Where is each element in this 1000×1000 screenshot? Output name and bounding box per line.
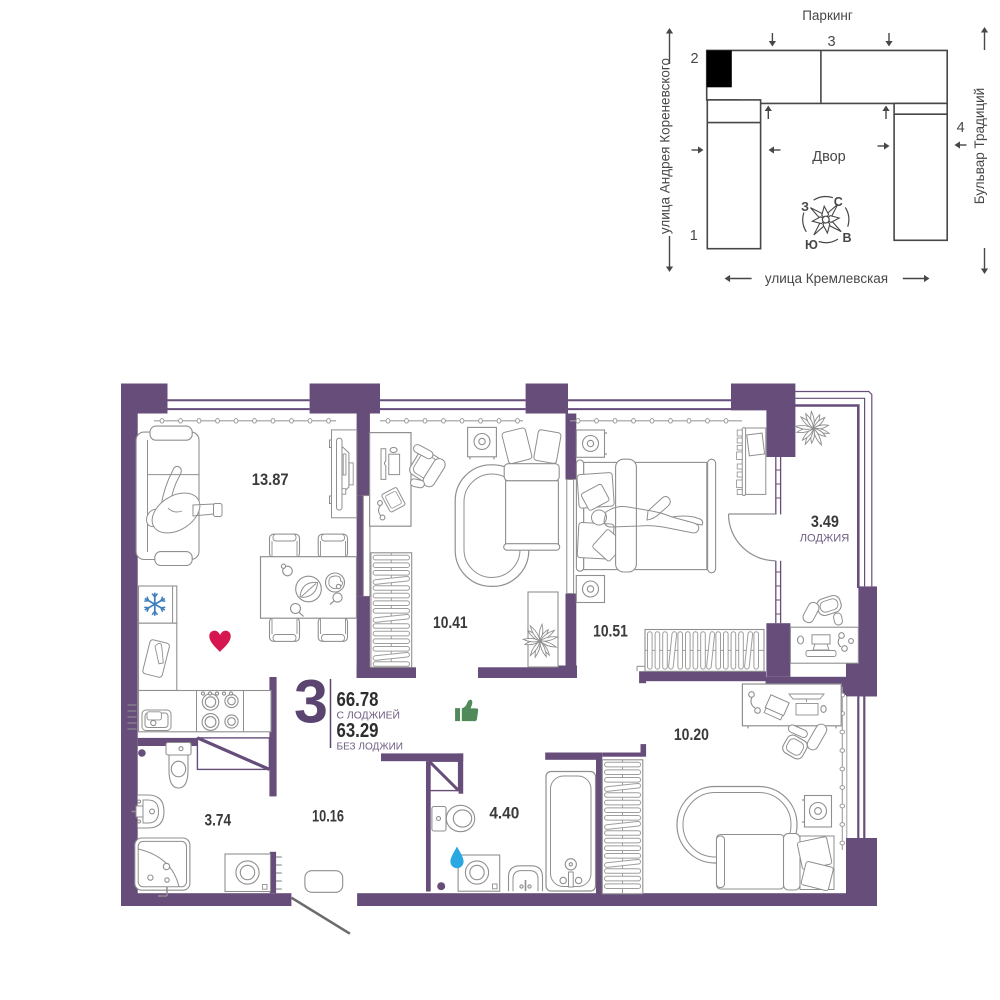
svg-text:Ю: Ю: [805, 238, 818, 252]
svg-text:10.16: 10.16: [312, 806, 344, 825]
svg-text:10.41: 10.41: [433, 613, 468, 632]
svg-text:Двор: Двор: [812, 149, 846, 165]
svg-text:3.74: 3.74: [205, 811, 232, 830]
svg-text:10.20: 10.20: [674, 725, 709, 744]
svg-text:1: 1: [690, 228, 698, 244]
svg-text:13.87: 13.87: [252, 470, 289, 489]
svg-text:Паркинг: Паркинг: [802, 8, 853, 23]
svg-text:Бульвар Традиций: Бульвар Традиций: [972, 88, 987, 204]
svg-text:В: В: [842, 231, 851, 245]
svg-text:10.51: 10.51: [593, 622, 628, 641]
svg-text:66.78: 66.78: [337, 688, 379, 711]
svg-text:4: 4: [957, 120, 965, 136]
svg-text:3: 3: [294, 668, 328, 736]
svg-text:3.49: 3.49: [811, 512, 839, 531]
svg-text:улица Кремлевская: улица Кремлевская: [765, 271, 888, 286]
svg-text:З: З: [801, 200, 809, 214]
svg-text:улица Андрея Кореневского: улица Андрея Кореневского: [657, 58, 672, 234]
svg-text:4.40: 4.40: [489, 803, 519, 822]
svg-text:3: 3: [827, 34, 835, 50]
svg-text:БЕЗ ЛОДЖИИ: БЕЗ ЛОДЖИИ: [337, 741, 404, 753]
svg-text:С: С: [834, 195, 843, 209]
svg-text:ЛОДЖИЯ: ЛОДЖИЯ: [800, 533, 850, 545]
svg-text:2: 2: [690, 51, 698, 67]
svg-text:63.29: 63.29: [337, 719, 379, 742]
